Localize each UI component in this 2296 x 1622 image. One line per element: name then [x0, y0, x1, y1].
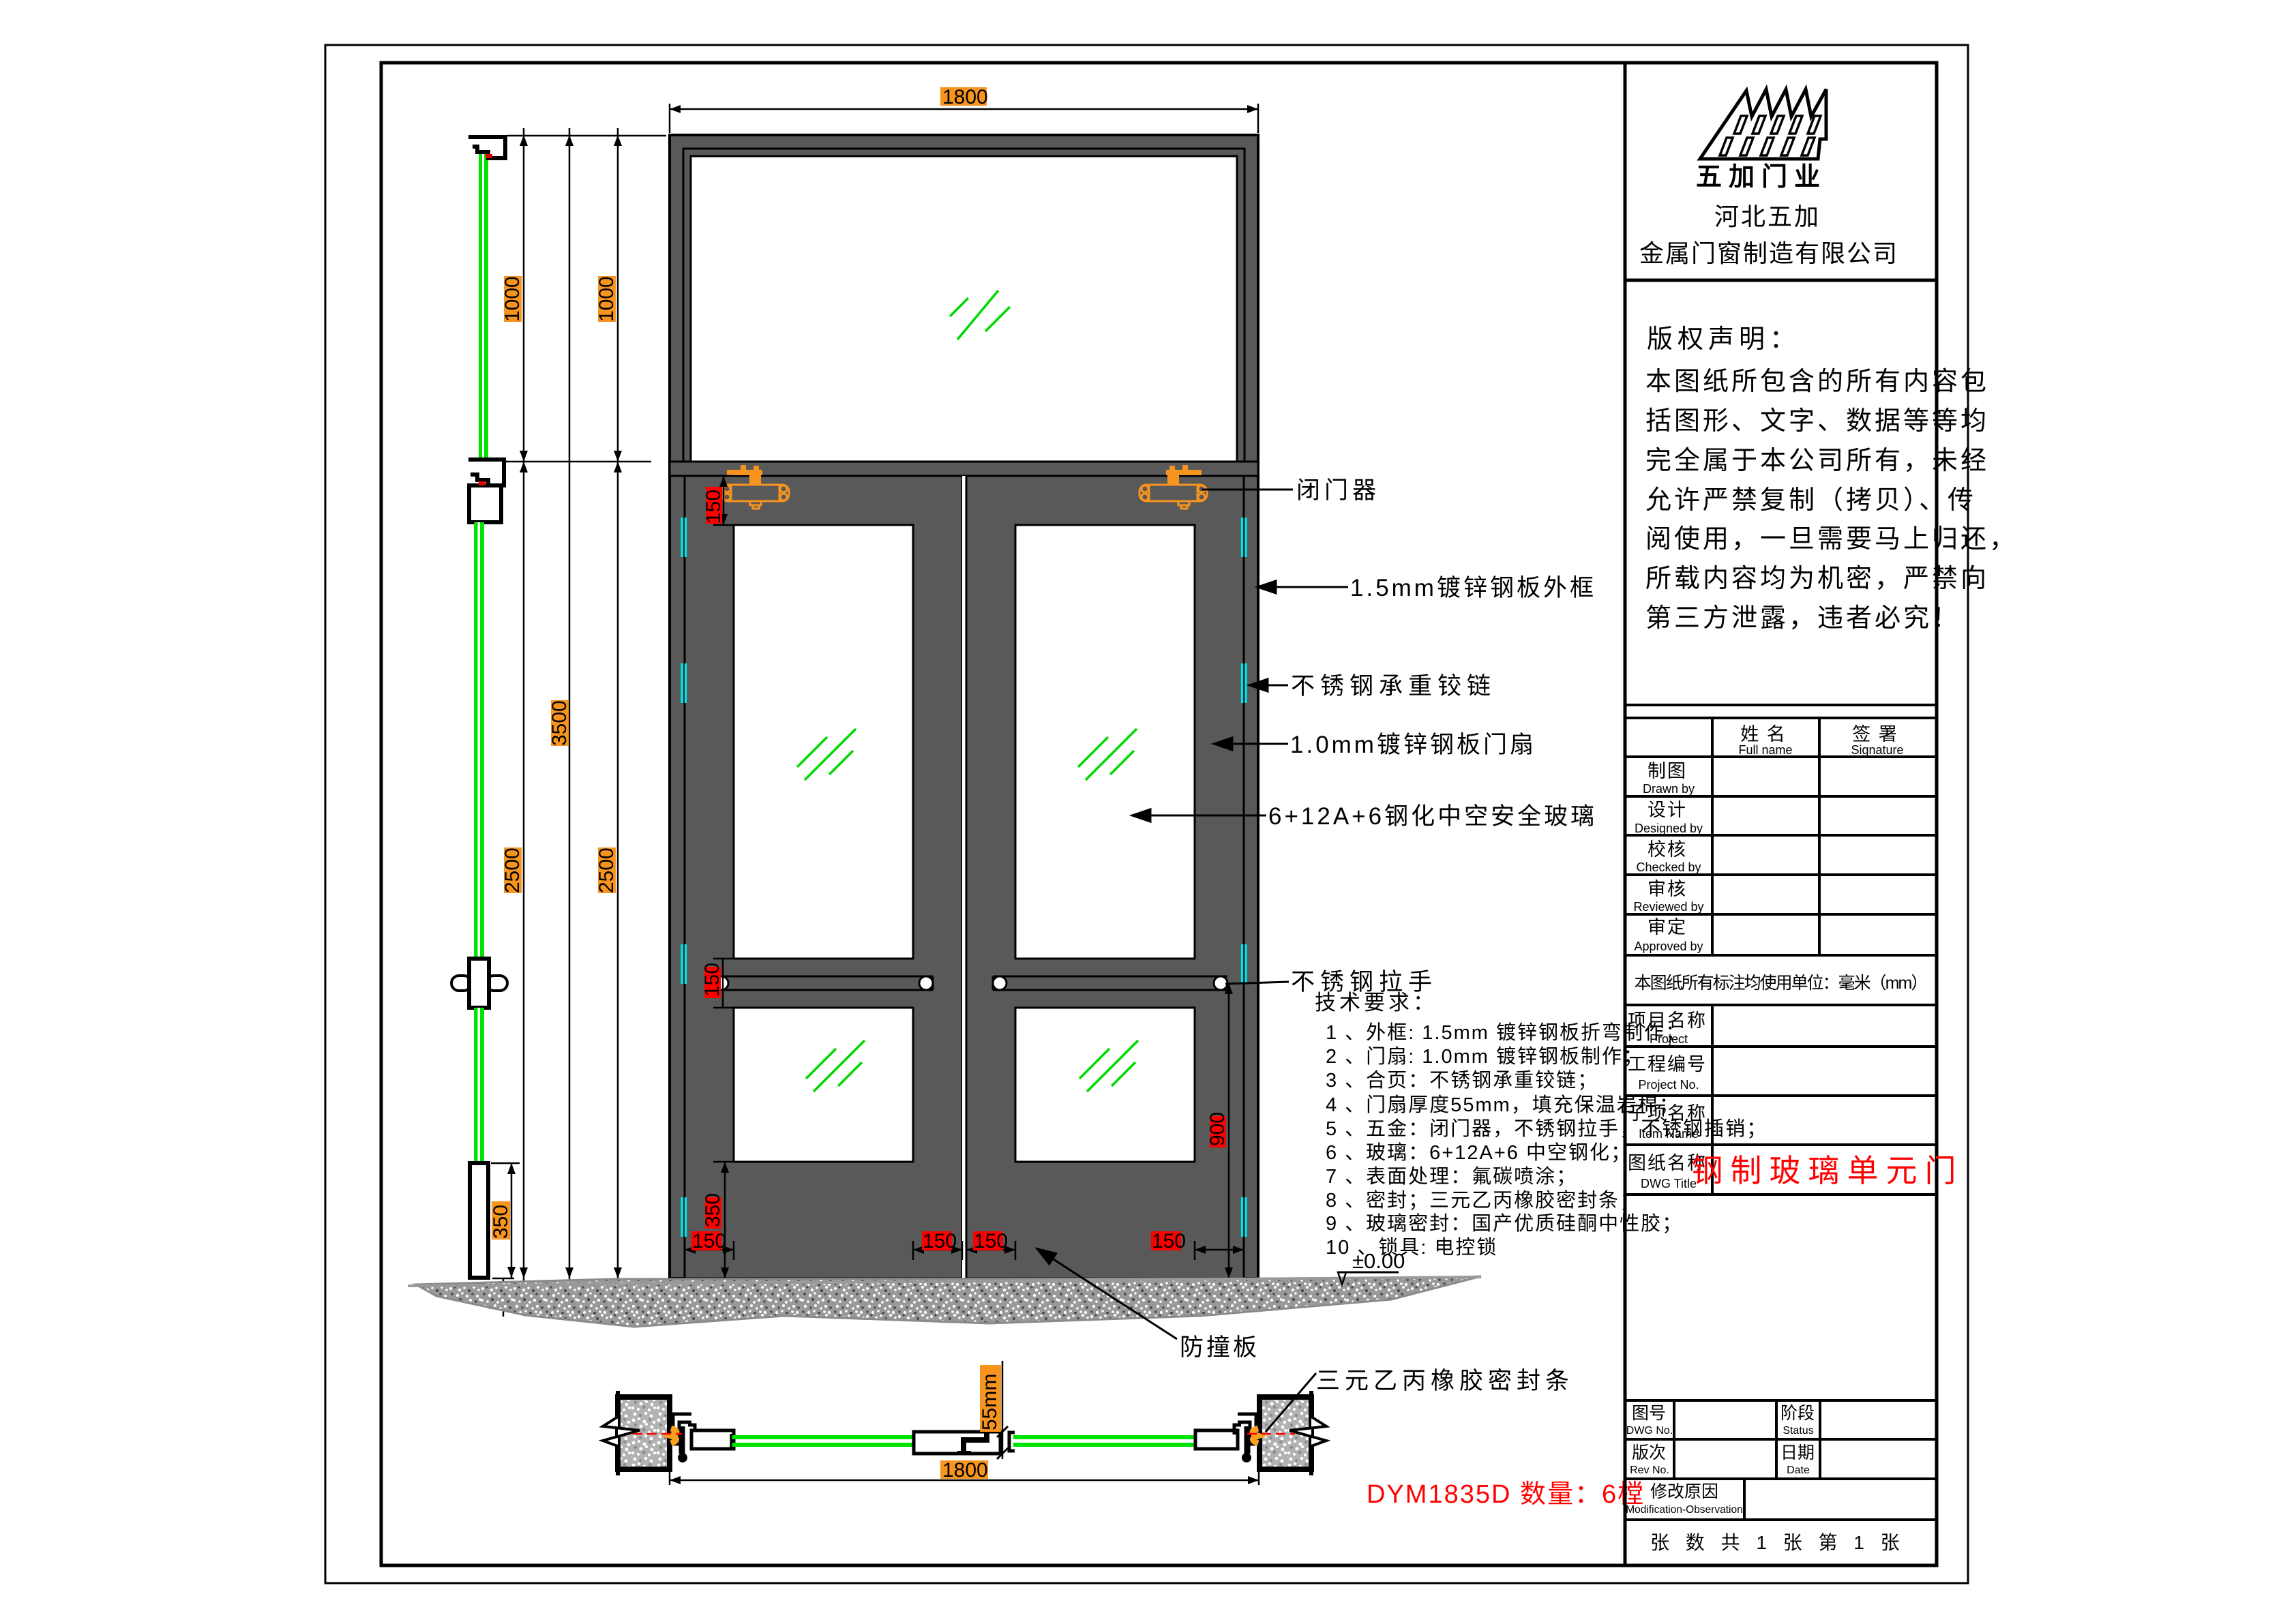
svg-text:150: 150 [702, 490, 725, 524]
svg-text:设计: 设计 [1648, 800, 1687, 820]
svg-text:Status: Status [1783, 1425, 1813, 1437]
svg-text:1000: 1000 [501, 276, 524, 322]
svg-text:900: 900 [1206, 1112, 1229, 1146]
svg-text:不锈钢承重铰链: 不锈钢承重铰链 [1291, 673, 1496, 700]
svg-text:阅使用，一旦需要马上归还，: 阅使用，一旦需要马上归还， [1645, 525, 2018, 554]
svg-text:所载内容均为机密，严禁向: 所载内容均为机密，严禁向 [1645, 565, 1989, 593]
svg-text:闭门器: 闭门器 [1296, 477, 1380, 504]
svg-text:DWG Title: DWG Title [1641, 1177, 1697, 1190]
svg-text:Item Name: Item Name [1639, 1127, 1699, 1141]
svg-text:Reviewed by: Reviewed by [1633, 900, 1703, 914]
svg-text:150: 150 [1152, 1230, 1186, 1252]
svg-text:姓 名: 姓 名 [1740, 724, 1787, 745]
svg-text:1800: 1800 [942, 86, 988, 108]
svg-text:版次: 版次 [1632, 1443, 1666, 1462]
svg-text:制图: 制图 [1648, 761, 1687, 781]
svg-text:10 、锁具: 电控锁: 10 、锁具: 电控锁 [1326, 1236, 1497, 1259]
svg-text:Drawn by: Drawn by [1643, 782, 1695, 796]
svg-text:技术要求：: 技术要求： [1315, 991, 1437, 1015]
svg-text:阶段: 阶段 [1780, 1404, 1815, 1423]
svg-text:钢制玻璃单元门: 钢制玻璃单元门 [1692, 1153, 1964, 1188]
svg-text:河北五加: 河北五加 [1714, 202, 1821, 230]
svg-text:金属门窗制造有限公司: 金属门窗制造有限公司 [1639, 239, 1898, 267]
svg-text:Modification-Observation: Modification-Observation [1626, 1504, 1742, 1516]
svg-text:7 、表面处理：氟碳喷涂；: 7 、表面处理：氟碳喷涂； [1326, 1165, 1577, 1188]
svg-text:6 、玻璃：6+12A+6 中空钢化；: 6 、玻璃：6+12A+6 中空钢化； [1326, 1141, 1632, 1164]
svg-text:55mm: 55mm [979, 1374, 1001, 1430]
svg-text:审核: 审核 [1648, 879, 1687, 899]
svg-text:校核: 校核 [1648, 839, 1687, 860]
svg-text:Designed by: Designed by [1635, 822, 1703, 835]
svg-text:150: 150 [692, 1230, 726, 1252]
svg-text:2500: 2500 [501, 847, 524, 893]
svg-text:防撞板: 防撞板 [1180, 1334, 1259, 1361]
svg-text:Signature: Signature [1851, 743, 1903, 757]
svg-text:日期: 日期 [1780, 1443, 1815, 1462]
svg-text:Date: Date [1787, 1465, 1810, 1476]
svg-text:Project: Project [1650, 1032, 1688, 1046]
svg-text:350: 350 [490, 1205, 512, 1239]
svg-text:Checked by: Checked by [1636, 860, 1701, 874]
svg-text:张 数 共 1 张 第 1 张: 张 数 共 1 张 第 1 张 [1650, 1532, 1905, 1553]
svg-text:修改原因: 修改原因 [1650, 1482, 1718, 1501]
svg-text:允许严禁复制（拷贝）、传: 允许严禁复制（拷贝）、传 [1645, 486, 1976, 515]
svg-text:三元乙丙橡胶密封条: 三元乙丙橡胶密封条 [1316, 1368, 1574, 1394]
svg-text:150: 150 [923, 1230, 957, 1252]
svg-text:350: 350 [702, 1193, 724, 1227]
svg-text:DYM1835D 数量：6樘: DYM1835D 数量：6樘 [1367, 1480, 1645, 1509]
svg-text:第三方泄露，违者必究！: 第三方泄露，违者必究！ [1645, 604, 1960, 633]
svg-text:1.5mm镀锌钢板外框: 1.5mm镀锌钢板外框 [1350, 575, 1596, 601]
svg-text:1000: 1000 [595, 276, 618, 322]
svg-text:项目名称: 项目名称 [1628, 1010, 1707, 1031]
svg-text:工程编号: 工程编号 [1628, 1054, 1707, 1075]
svg-text:Project No.: Project No. [1638, 1078, 1699, 1092]
svg-text:本图纸所包含的所有内容包: 本图纸所包含的所有内容包 [1645, 367, 1989, 396]
svg-text:8 、密封；三元乙丙橡胶密封条；: 8 、密封；三元乙丙橡胶密封条； [1326, 1189, 1641, 1212]
svg-text:完全属于本公司所有，未经: 完全属于本公司所有，未经 [1645, 447, 1989, 475]
svg-text:6+12A+6钢化中空安全玻璃: 6+12A+6钢化中空安全玻璃 [1268, 803, 1597, 830]
svg-text:Full name: Full name [1738, 743, 1792, 757]
svg-text:Approved by: Approved by [1634, 940, 1703, 953]
svg-text:DWG No.: DWG No. [1626, 1425, 1673, 1437]
svg-text:3 、合页：不锈钢承重铰链；: 3 、合页：不锈钢承重铰链； [1326, 1069, 1598, 1092]
svg-text:2500: 2500 [595, 847, 618, 893]
svg-text:审定: 审定 [1648, 917, 1687, 937]
svg-text:本图纸所有标注均使用单位：毫米（mm）: 本图纸所有标注均使用单位：毫米（mm） [1635, 974, 1927, 993]
svg-text:3500: 3500 [548, 700, 571, 746]
svg-text:图号: 图号 [1632, 1404, 1666, 1423]
svg-text:子项名称: 子项名称 [1628, 1103, 1707, 1124]
svg-text:9 、玻璃密封：国产优质硅酮中性胶；: 9 、玻璃密封：国产优质硅酮中性胶； [1326, 1212, 1683, 1235]
svg-text:2 、门扇: 1.0mm 镀锌钢板制作；: 2 、门扇: 1.0mm 镀锌钢板制作； [1326, 1045, 1644, 1068]
svg-text:五加门业: 五加门业 [1696, 163, 1827, 192]
svg-text:签 署: 签 署 [1852, 724, 1898, 745]
svg-text:1800: 1800 [942, 1459, 988, 1482]
svg-text:Rev No.: Rev No. [1630, 1465, 1669, 1476]
svg-text:150: 150 [974, 1230, 1008, 1252]
svg-text:150: 150 [701, 963, 724, 997]
svg-text:括图形、文字、数据等等均: 括图形、文字、数据等等均 [1645, 407, 1989, 436]
svg-text:1.0mm镀锌钢板门扇: 1.0mm镀锌钢板门扇 [1290, 732, 1536, 758]
svg-text:版权声明：: 版权声明： [1647, 325, 1800, 354]
